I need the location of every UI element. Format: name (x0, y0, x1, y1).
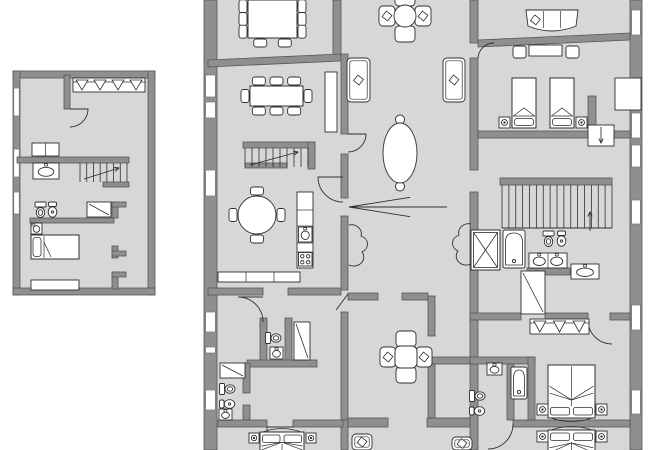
bidet (220, 400, 235, 409)
interior-wall (208, 288, 263, 295)
interior-wall (528, 357, 535, 420)
interior-wall (428, 296, 435, 336)
window (14, 88, 20, 116)
interior-wall (17, 157, 129, 163)
interior-wall (513, 420, 630, 427)
interior-wall (112, 202, 126, 207)
nightstand (499, 117, 510, 128)
bidet (470, 407, 485, 416)
floor-plan-canvas (0, 0, 650, 450)
nightstand (576, 117, 587, 128)
washbasin (487, 363, 502, 375)
chair (513, 46, 526, 58)
window (206, 170, 216, 196)
interior-wall (112, 272, 126, 277)
bidet (557, 231, 566, 246)
single-bed (550, 78, 574, 128)
nightstand (537, 404, 548, 415)
toilet (220, 384, 236, 395)
interior-wall (218, 420, 267, 427)
armchair (452, 437, 472, 450)
interior-wall (610, 313, 630, 320)
interior-wall (243, 142, 315, 148)
outer-wall-left (204, 0, 217, 450)
shower (87, 202, 111, 217)
window (632, 113, 641, 138)
toilet (543, 231, 554, 247)
interior-wall (348, 293, 378, 300)
toilet (470, 391, 486, 402)
interior-wall (402, 293, 428, 300)
sideboard (325, 72, 337, 132)
window (206, 390, 216, 410)
kitchen-counter (218, 272, 300, 282)
window (632, 390, 641, 414)
shelf (31, 280, 79, 290)
interior-wall (428, 364, 435, 418)
nightstand (596, 404, 607, 415)
radiator-niche (615, 78, 641, 110)
interior-wall (112, 251, 126, 256)
window (206, 312, 216, 332)
window (14, 192, 20, 214)
single-bed (512, 78, 536, 128)
window (206, 347, 216, 353)
interior-wall (288, 288, 341, 295)
wardrobe (73, 78, 145, 92)
dresser (32, 143, 59, 156)
elevator-shaft (471, 230, 500, 270)
nightstand (537, 431, 548, 442)
floor-plan-svg (0, 0, 650, 450)
interior-wall (247, 360, 317, 367)
dresser (529, 45, 562, 56)
interior-wall (470, 357, 535, 364)
shower (220, 363, 245, 378)
outer-wall-top (13, 71, 155, 78)
window (206, 102, 216, 118)
interior-wall (308, 142, 315, 169)
window (632, 200, 641, 224)
interior-wall (341, 216, 348, 290)
armchair (352, 434, 372, 450)
washing-machine (31, 223, 42, 234)
shower (521, 271, 545, 314)
hall-wall (470, 0, 478, 43)
interior-wall (500, 178, 612, 185)
window (632, 10, 641, 35)
window (206, 75, 216, 97)
bathtub (511, 367, 527, 399)
kitchen-sink (299, 227, 313, 242)
wardrobe (530, 319, 589, 334)
main-floor-plan (204, 0, 642, 450)
armchair (347, 58, 370, 102)
chair (566, 46, 579, 58)
double-bed (260, 429, 304, 450)
interior-wall (243, 405, 250, 420)
outer-wall-right (148, 71, 155, 295)
interior-wall (285, 318, 292, 362)
window (632, 145, 641, 167)
outer-wall-right (630, 0, 642, 450)
interior-wall (427, 418, 473, 427)
interior-wall (341, 154, 348, 198)
interior-wall (333, 0, 341, 56)
double-bed (548, 365, 595, 422)
washbasin (33, 163, 59, 179)
interior-wall (470, 313, 521, 320)
shower (294, 322, 310, 360)
interior-wall (64, 75, 70, 109)
hall-wall (470, 58, 478, 170)
sofa (526, 10, 578, 31)
interior-wall (103, 182, 129, 187)
nightstand (596, 431, 607, 442)
interior-wall (30, 218, 114, 223)
bathtub (503, 230, 525, 268)
armchair (443, 58, 465, 102)
double-bed (548, 427, 595, 450)
double-washbasin (529, 253, 567, 268)
washbasin (219, 409, 232, 420)
interior-wall (293, 420, 343, 427)
upper-floor-plan (13, 71, 155, 295)
single-bed (31, 235, 79, 259)
interior-wall (348, 418, 388, 427)
interior-wall (341, 312, 348, 420)
stove (299, 253, 313, 267)
toilet (35, 202, 46, 218)
washbasin (270, 347, 283, 359)
washbasin (571, 264, 599, 279)
nightstand (249, 433, 259, 443)
toilet (266, 333, 282, 344)
nightstand (306, 433, 316, 443)
bidet (48, 202, 57, 217)
window (632, 305, 641, 330)
